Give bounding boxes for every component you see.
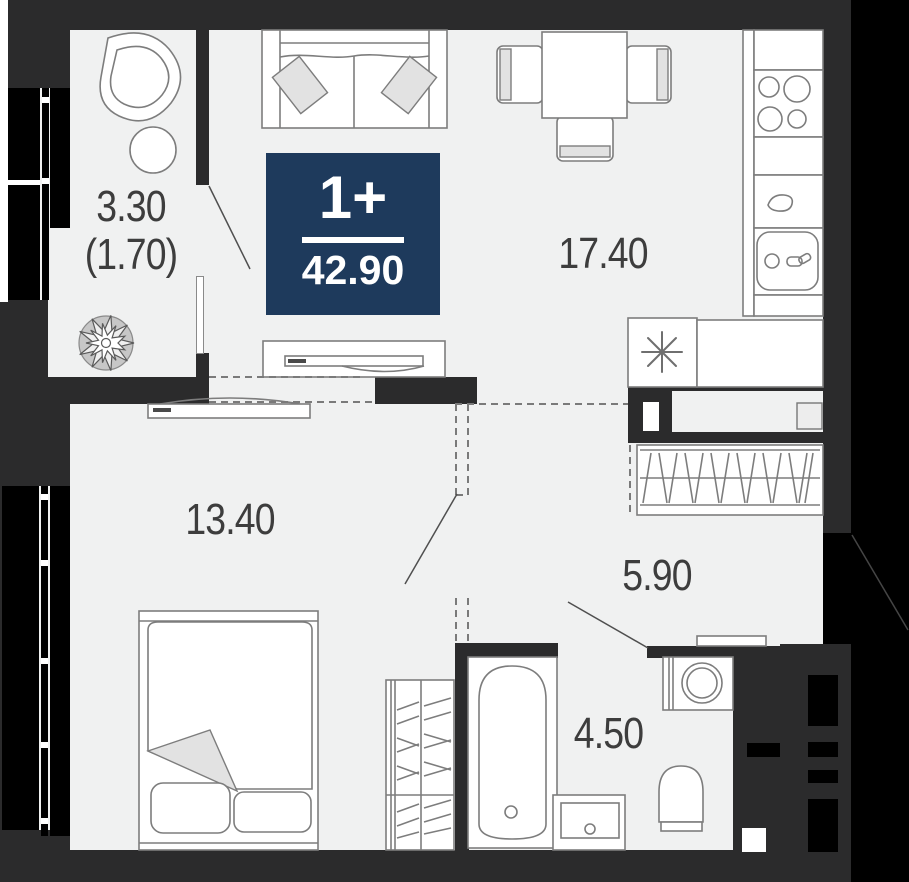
window-bedroom-inner — [50, 486, 70, 836]
wall-bedroom-top-a — [0, 377, 209, 404]
vent-shaft — [808, 799, 838, 852]
faucet-icon — [768, 195, 792, 211]
door-lintel — [697, 636, 766, 646]
wall-left-mid — [0, 300, 48, 377]
blanket-fold — [148, 730, 237, 791]
dining-table — [542, 32, 627, 118]
pillow — [151, 783, 230, 833]
balcony-door-leaf — [196, 276, 204, 354]
hanging-chair — [100, 33, 180, 121]
outside-right — [851, 0, 909, 882]
toilet — [659, 766, 703, 831]
vent-shaft — [808, 742, 838, 757]
wardrobe — [386, 680, 454, 850]
window-divider — [41, 560, 48, 566]
wall-corridor-band-top — [628, 385, 823, 391]
floor-plan: 3.30 (1.70) 17.40 13.40 5.90 4.50 1+ 42.… — [0, 0, 909, 882]
badge-divider — [302, 237, 404, 243]
room-label-bedroom: 13.40 — [158, 496, 303, 544]
room-label-bathroom: 4.50 — [538, 710, 678, 758]
wall-bath-top-left — [455, 643, 558, 658]
pillow — [381, 56, 436, 113]
vent-shaft — [808, 770, 838, 783]
wall-bedroom-top-b — [375, 377, 477, 404]
outside-left-top — [0, 0, 8, 302]
room-label-kitchen-living: 17.40 — [531, 230, 676, 278]
appliance-asterisk-icon — [642, 332, 682, 372]
wall-balcony-pier — [196, 353, 209, 377]
balcony-area: 3.30 — [50, 183, 212, 231]
entrance-opening — [823, 533, 909, 644]
window-divider — [41, 818, 48, 824]
window-divider — [42, 178, 49, 184]
wall-niche — [643, 402, 659, 431]
apartment-badge: 1+ 42.90 — [266, 153, 440, 315]
window-divider — [8, 180, 40, 185]
wall-corridor-band-bottom — [672, 432, 823, 443]
wall-bottom — [0, 850, 853, 882]
vent-shaft — [808, 675, 838, 726]
wall-balcony-divider — [196, 30, 209, 185]
window-divider — [41, 494, 48, 500]
washing-machine — [663, 657, 733, 710]
wall-recess-box — [797, 403, 822, 429]
room-label-balcony: 3.30 (1.70) — [50, 183, 212, 279]
balcony-area-secondary: (1.70) — [50, 231, 212, 279]
wardrobe — [637, 445, 823, 515]
window-divider — [41, 742, 48, 748]
wall-top-left-block — [8, 30, 70, 88]
badge-total-area: 42.90 — [266, 247, 440, 293]
wall-bath-left — [455, 643, 469, 852]
window-divider — [41, 658, 48, 664]
dining-chair — [626, 46, 671, 103]
wall-left-lower — [0, 404, 70, 486]
window-balcony-outer — [8, 88, 40, 300]
badge-rooms-label: 1+ — [266, 161, 440, 235]
plant-icon — [79, 315, 134, 370]
window-bedroom-outer — [2, 486, 39, 830]
dining-chair — [497, 46, 543, 103]
wall-top — [8, 0, 851, 30]
sofa — [262, 30, 447, 128]
room-label-hallway: 5.90 — [589, 552, 725, 600]
vent-shaft — [747, 743, 780, 757]
wall-niche — [742, 828, 766, 852]
kitchen-counter — [628, 30, 823, 387]
pillow — [234, 792, 311, 832]
dining-chair — [557, 116, 613, 161]
window-balcony-mullion — [42, 88, 49, 300]
pillow — [272, 56, 327, 113]
coffee-table — [130, 127, 176, 173]
bed — [139, 611, 318, 850]
cooktop-icon — [758, 76, 810, 131]
wall-bath-top-right — [780, 644, 852, 674]
dining-set — [497, 32, 671, 161]
wall-right — [823, 0, 852, 533]
wall-bath-top-thin — [647, 646, 780, 658]
kitchen-sink-icon — [757, 232, 818, 290]
bathroom-sink — [553, 795, 625, 850]
window-divider — [42, 97, 49, 103]
tv-console — [263, 341, 445, 377]
